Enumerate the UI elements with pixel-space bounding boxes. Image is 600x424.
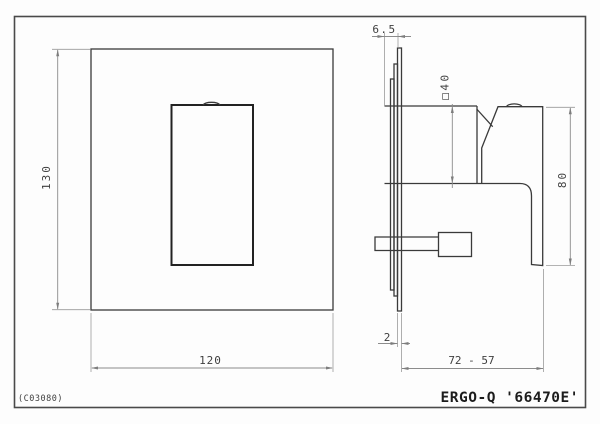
dim-40-label: □40: [439, 72, 452, 99]
dim-6-5-label: 6.5: [372, 23, 396, 36]
drawing-code: (C03080): [18, 394, 63, 404]
dim-80-label: 80: [556, 171, 569, 188]
dim-2-label: 2: [384, 331, 391, 344]
drawing-canvas: 130 120 6.5 □40 80 2 72 - 57 ERGO-Q '664…: [0, 0, 600, 424]
product-title: ERGO-Q '66470E': [441, 390, 579, 406]
dim-120-label: 120: [199, 354, 222, 367]
technical-drawing-page: 130 120 6.5 □40 80 2 72 - 57 ERGO-Q '664…: [0, 0, 600, 424]
sheet-background: [0, 0, 600, 424]
dim-130-label: 130: [40, 164, 53, 190]
dim-depth-label: 72 - 57: [448, 354, 494, 367]
